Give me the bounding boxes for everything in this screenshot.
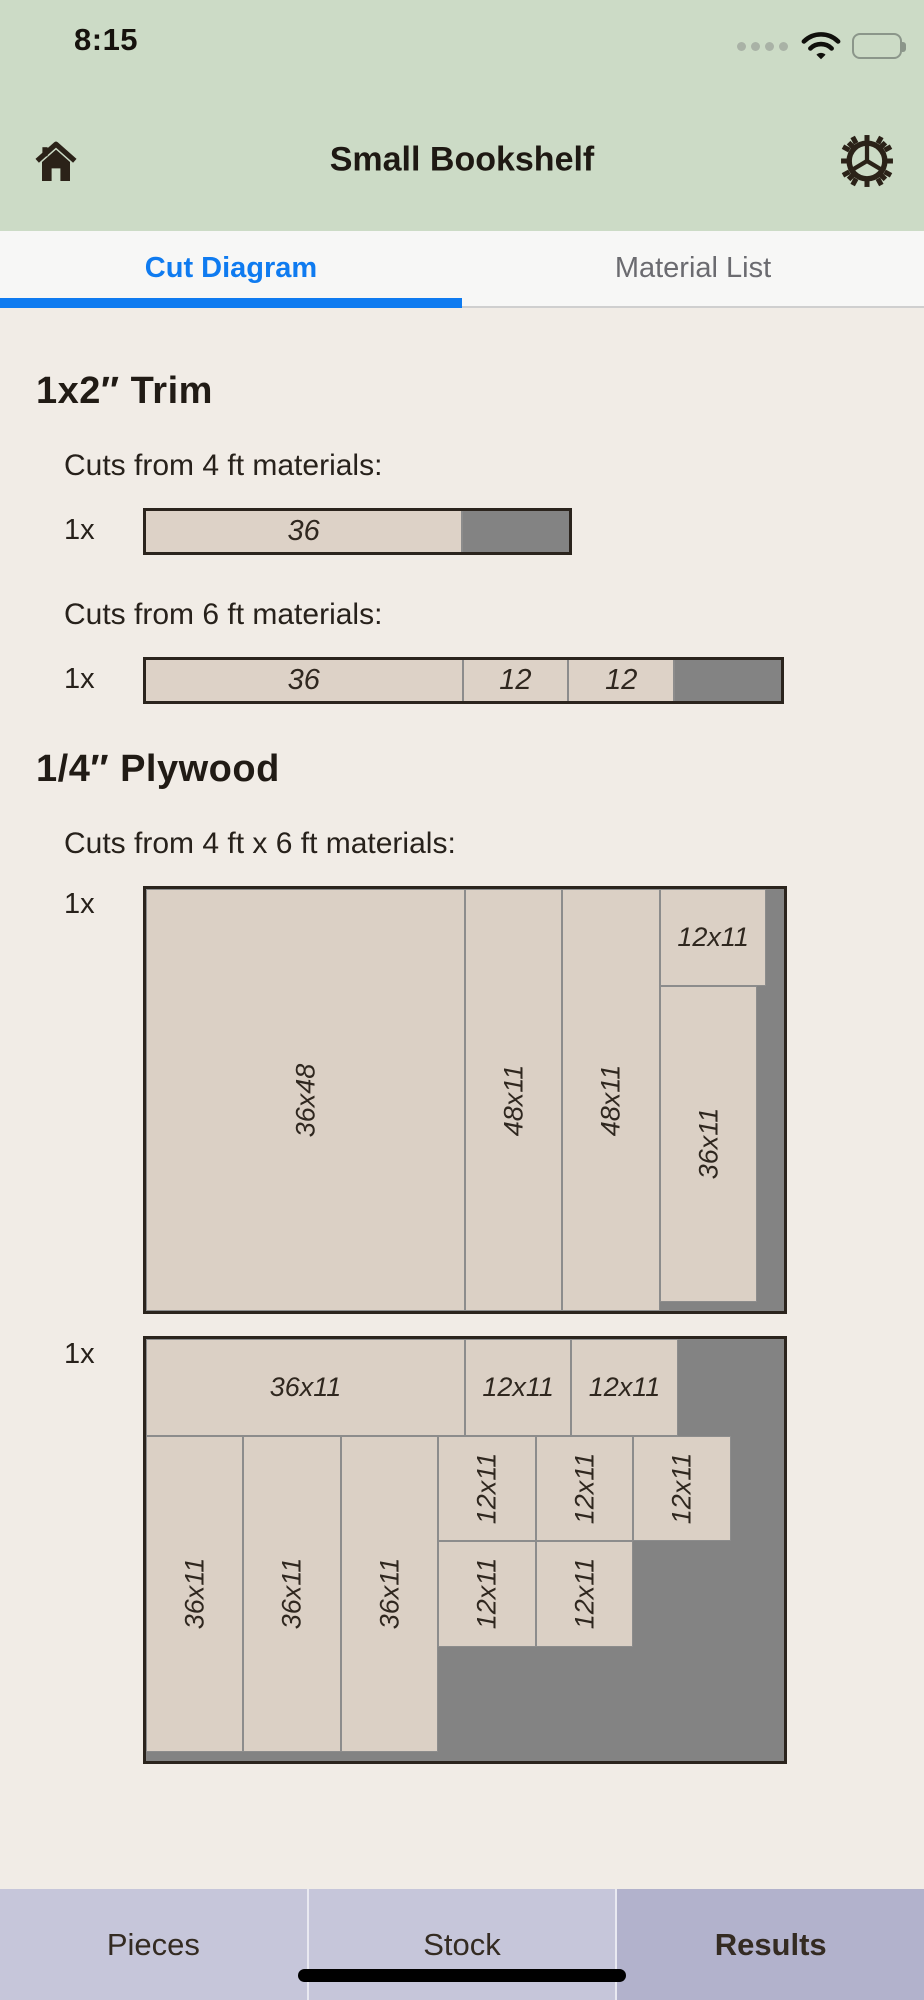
section-heading-plywood: 1/4″ Plywood [36, 746, 924, 792]
cut-piece: 12x11 [465, 1339, 571, 1436]
bottom-tab-stock-label: Stock [423, 1927, 501, 1963]
group-label-sheet: Cuts from 4 ft x 6 ft materials: [64, 826, 924, 862]
cut-piece: 12x11 [536, 1436, 633, 1542]
settings-gear-icon [836, 130, 898, 192]
cut-piece: 12x11 [633, 1436, 730, 1542]
cut-piece: 12x11 [571, 1339, 677, 1436]
tab-material-list[interactable]: Material List [462, 231, 924, 306]
cut-diagram-content: 1x2″ Trim Cuts from 4 ft materials: 1x 3… [0, 308, 924, 1889]
section-heading-trim: 1x2″ Trim [36, 368, 924, 414]
tab-cut-diagram[interactable]: Cut Diagram [0, 231, 462, 306]
trim-4ft-row: 1x 36 [0, 508, 924, 555]
group-label-6ft: Cuts from 6 ft materials: [64, 597, 924, 633]
cut-piece: 36x11 [341, 1436, 438, 1753]
bottom-tab-results[interactable]: Results [615, 1889, 924, 2000]
cut-piece: 48x11 [562, 889, 659, 1311]
group-label-4ft: Cuts from 4 ft materials: [64, 448, 924, 484]
sheet-count: 1x [64, 1336, 143, 1371]
app-screen: 8:15 [0, 0, 924, 2000]
plywood-sheet-1-row: 1x 36x48 48x11 48x11 12x11 36x11 [0, 886, 924, 1314]
status-time: 8:15 [74, 22, 138, 58]
plywood-sheet-2: 36x11 12x11 12x11 36x11 36x11 36x11 12x1… [143, 1336, 787, 1764]
status-bar: 8:15 [0, 0, 924, 90]
settings-button[interactable] [836, 130, 898, 192]
bottom-tab-pieces[interactable]: Pieces [0, 1889, 307, 2000]
cut-piece: 36x11 [660, 986, 757, 1303]
sheet-count: 1x [64, 886, 143, 921]
cut-piece: 12x11 [438, 1436, 535, 1542]
bottom-tab-results-label: Results [715, 1927, 827, 1963]
cut-piece: 36 [146, 660, 464, 701]
tab-cut-diagram-label: Cut Diagram [145, 252, 317, 285]
wifi-icon [800, 30, 842, 62]
page-title: Small Bookshelf [0, 140, 924, 179]
bottom-tab-pieces-label: Pieces [107, 1927, 200, 1963]
cut-piece: 12x11 [660, 889, 766, 986]
bottom-tab-stock[interactable]: Stock [307, 1889, 616, 2000]
trim-4ft-bar: 36 [143, 508, 572, 555]
board-count: 1x [64, 508, 143, 547]
cut-piece: 36x11 [146, 1436, 243, 1753]
cut-piece: 12 [464, 660, 570, 701]
cut-piece: 36x48 [146, 889, 465, 1311]
cut-piece: 12x11 [536, 1541, 633, 1647]
tab-material-list-label: Material List [615, 252, 771, 285]
trim-6ft-row: 1x 36 12 12 [0, 657, 924, 704]
cut-piece: 12x11 [438, 1541, 535, 1647]
cut-piece: 36x11 [146, 1339, 465, 1436]
cut-piece: 36 [146, 511, 463, 552]
cut-piece: 12 [569, 660, 675, 701]
plywood-sheet-2-row: 1x 36x11 12x11 12x11 36x11 36x11 36x11 1… [0, 1336, 924, 1764]
status-icons [737, 30, 902, 62]
plywood-sheet-1: 36x48 48x11 48x11 12x11 36x11 [143, 886, 787, 1314]
bottom-tab-bar: Pieces Stock Results [0, 1889, 924, 2000]
cut-piece: 36x11 [243, 1436, 340, 1753]
navigation-header: Small Bookshelf [0, 90, 924, 231]
app-header-area: 8:15 [0, 0, 924, 231]
home-indicator[interactable] [298, 1969, 626, 1982]
trim-6ft-bar: 36 12 12 [143, 657, 784, 704]
cellular-signal-icon [737, 42, 788, 51]
cut-piece: 48x11 [465, 889, 562, 1311]
board-count: 1x [64, 657, 143, 696]
battery-icon [852, 33, 902, 59]
top-tab-bar: Cut Diagram Material List [0, 231, 924, 308]
